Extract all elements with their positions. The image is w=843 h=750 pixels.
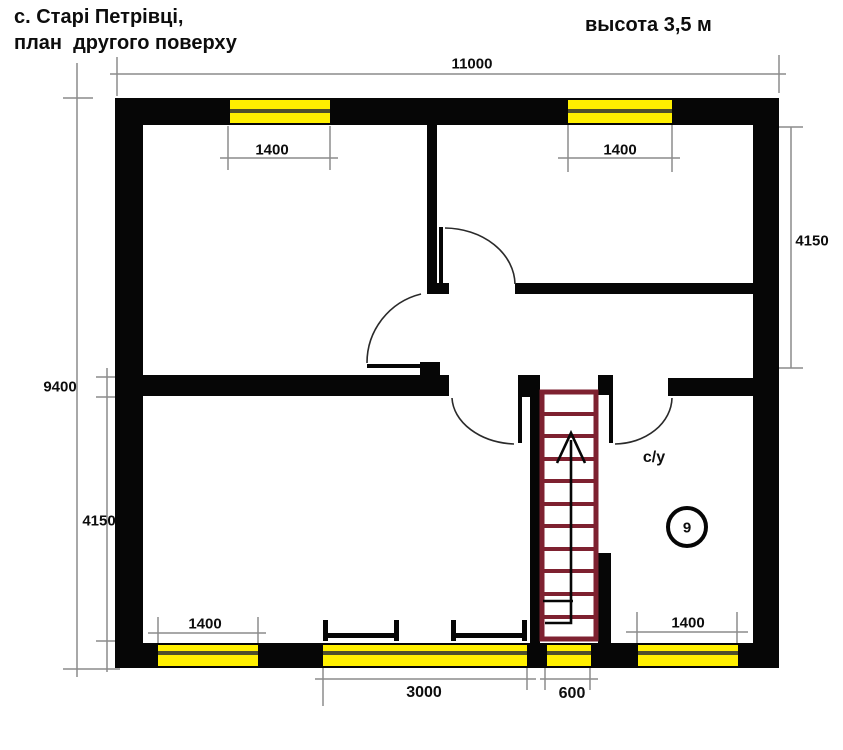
partition-foot: [427, 283, 449, 294]
dim-window-bottom-center: 3000: [406, 684, 442, 702]
door-arc-upper-left-room: [367, 294, 421, 363]
stair-right-block: [598, 375, 613, 395]
door-arc-upper-right-room: [445, 228, 515, 284]
bathroom-label: с/у: [643, 449, 665, 467]
right-wall: [753, 98, 779, 668]
top-wall: [115, 98, 779, 125]
dim-overall-depth: 9400: [43, 379, 76, 396]
walls: [115, 98, 779, 668]
doors: [367, 227, 672, 444]
dim-upper-room-depth: 4150: [795, 233, 828, 250]
bathroom-top-wall: [668, 378, 753, 396]
dim-lower-room-depth: 4150: [82, 513, 115, 530]
window-stair: [547, 645, 591, 666]
window-bottom-center-frame: [323, 651, 527, 655]
railing-post: [451, 620, 456, 641]
plan-title-line1: с. Старі Петрівці,: [14, 4, 183, 30]
stair-left-wall: [530, 396, 540, 643]
window-bottom-right-frame: [638, 651, 738, 655]
railing-post: [394, 620, 399, 641]
window-bottom-left-frame: [158, 651, 258, 655]
staircase: [540, 392, 598, 639]
window-bottom-right: [638, 645, 738, 666]
floor-plan-drawing: [0, 0, 843, 750]
railing-bar: [323, 633, 399, 638]
plan-title-line2: план другого поверху: [14, 30, 237, 56]
window-bottom-center: [323, 645, 527, 666]
dim-overall-width: 11000: [452, 56, 493, 73]
dim-window-bottom-right: 1400: [671, 615, 704, 632]
floor-plan: с. Старі Петрівці, план другого поверху …: [0, 0, 843, 750]
balcony-railings: [323, 620, 527, 641]
railing-post: [522, 620, 527, 641]
dim-stair-window: 600: [559, 685, 586, 703]
left-wall: [115, 98, 143, 668]
partition-top-rooms: [427, 125, 437, 294]
window-top-right-frame: [568, 109, 672, 113]
railing-bar: [451, 633, 527, 638]
room-number: 9: [683, 520, 691, 537]
dim-window-top-left: 1400: [255, 142, 288, 159]
door-arc-lower-left-room: [452, 398, 514, 444]
dim-window-bottom-left: 1400: [188, 616, 221, 633]
railing-post: [323, 620, 328, 641]
mid-wall-left: [143, 375, 449, 396]
window-top-left-frame: [230, 109, 330, 113]
window-bottom-left: [158, 645, 258, 666]
window-stair-frame: [547, 651, 591, 655]
stair-treads: [540, 414, 598, 617]
door-arc-bathroom: [615, 398, 672, 444]
ceiling-height-note: высота 3,5 м: [585, 12, 712, 38]
dim-window-top-right: 1400: [603, 142, 636, 159]
stair-right-lower-wall: [598, 553, 611, 643]
partition-upper-right-room: [515, 283, 755, 294]
stair-left-block: [518, 375, 540, 397]
